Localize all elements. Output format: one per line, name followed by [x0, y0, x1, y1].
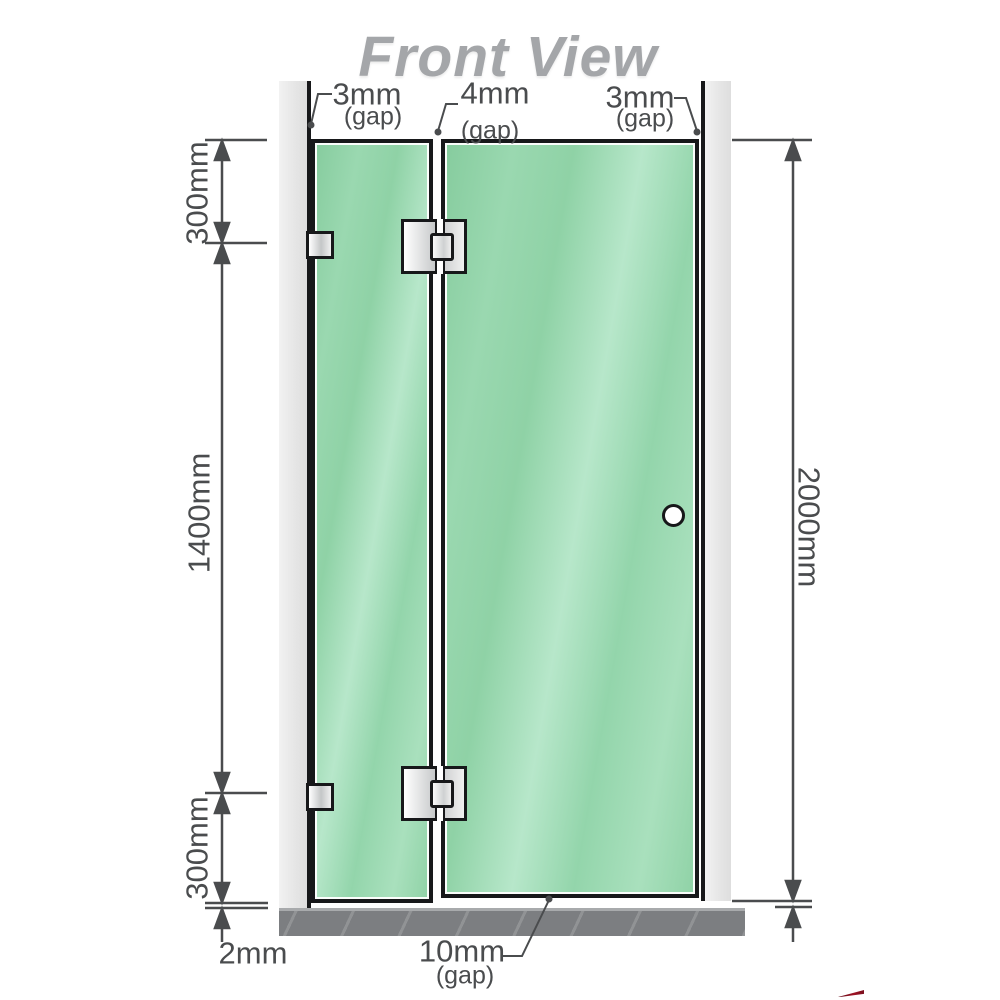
hinge-gap-slot: [435, 808, 445, 821]
gap-label-top-middle: 4mm: [461, 78, 530, 109]
glass-door-panel: [441, 139, 699, 898]
dim-label-middle-1400mm: 1400mm: [184, 453, 215, 574]
cropped-logo-mark: [838, 990, 864, 997]
hinge-gap-slot: [435, 766, 445, 780]
gap-unit-bottom: (gap): [436, 964, 494, 989]
hinge-gap-slot: [435, 219, 445, 233]
gap-unit-top-right: (gap): [616, 107, 674, 132]
dim-label-top-300mm: 300mm: [182, 141, 213, 244]
dim-label-floor-clearance-2mm: 2mm: [219, 938, 288, 969]
gap-unit-top-left: (gap): [344, 105, 402, 130]
glass-hinge-bottom-block: [430, 780, 454, 808]
gap-unit-top-middle: (gap): [461, 119, 519, 144]
front-view-diagram: Front View: [0, 0, 1000, 1000]
dim-label-overall-2000mm: 2000mm: [794, 467, 825, 588]
door-handle-knob: [662, 504, 685, 527]
glass-hinge-top-block: [430, 233, 454, 261]
wall-bracket-top: [306, 231, 334, 259]
wall-bracket-bottom: [306, 783, 334, 811]
right-wall-channel: [701, 81, 731, 901]
hinge-gap-slot: [435, 261, 445, 274]
dim-label-bottom-300mm: 300mm: [182, 796, 213, 899]
floor-base: [279, 908, 745, 936]
